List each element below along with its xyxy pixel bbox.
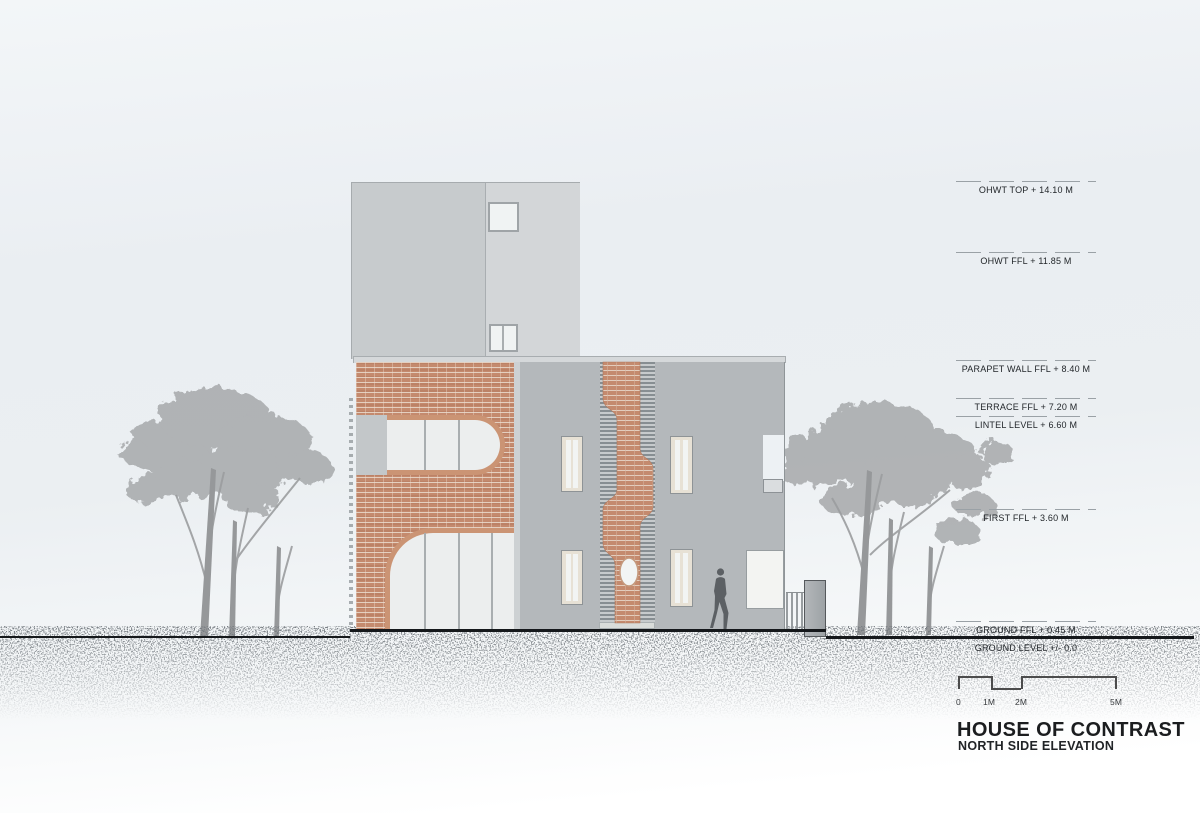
louver-base-sill xyxy=(599,622,655,629)
tower-window-double xyxy=(489,324,518,352)
facade-notch xyxy=(763,435,784,481)
ground-line-right xyxy=(826,636,1194,639)
tree-group-left xyxy=(117,388,332,637)
level-annotation: TERRACE FFL + 7.20 M xyxy=(956,398,1096,412)
level-label: OHWT FFL + 11.85 M xyxy=(956,256,1096,266)
window-pane xyxy=(683,553,688,603)
window-first-right xyxy=(670,436,693,494)
level-line xyxy=(956,416,1096,417)
scale-segment xyxy=(958,676,991,678)
scale-label: 2M xyxy=(1015,697,1027,707)
window-pane xyxy=(683,440,688,490)
rough-wall-edge xyxy=(349,398,353,632)
level-annotation: GROUND FFL + 0.45 M xyxy=(956,621,1096,635)
louver-strip xyxy=(600,362,655,623)
level-annotation: OHWT FFL + 11.85 M xyxy=(956,252,1096,266)
level-label: FIRST FFL + 3.60 M xyxy=(956,513,1096,523)
curved-glass-opening xyxy=(385,528,514,630)
window-pane xyxy=(573,554,578,601)
scale-label: 5M xyxy=(1110,697,1122,707)
level-line xyxy=(956,509,1096,510)
elevation-drawing: OHWT TOP + 14.10 M OHWT FFL + 11.85 M PA… xyxy=(0,0,1200,813)
level-line xyxy=(956,398,1096,399)
window-pane xyxy=(566,554,571,601)
window-ground-right xyxy=(670,549,693,607)
scale-tick xyxy=(958,676,960,689)
level-annotation: PARAPET WALL FFL + 8.40 M xyxy=(956,360,1096,374)
notch-box xyxy=(763,479,783,493)
window-mullion xyxy=(491,533,493,630)
level-annotation: LINTEL LEVEL + 6.60 M xyxy=(956,416,1096,430)
level-label: OHWT TOP + 14.10 M xyxy=(956,185,1096,195)
window-pane xyxy=(573,440,578,488)
window-mullion xyxy=(458,420,460,470)
window-mullion xyxy=(502,326,504,350)
tower-window-small xyxy=(488,202,519,232)
window-mullion xyxy=(424,533,426,630)
entrance-door xyxy=(746,550,784,609)
level-label: PARAPET WALL FFL + 8.40 M xyxy=(956,364,1096,374)
window-pane xyxy=(675,553,680,603)
level-label: GROUND LEVEL +/- 0.0 xyxy=(956,643,1096,653)
ground-line-left xyxy=(0,636,350,638)
window-pane xyxy=(675,440,680,490)
facade-corner-strip xyxy=(514,362,520,630)
level-line xyxy=(956,621,1096,622)
curved-window-band xyxy=(387,415,505,475)
scale-segment xyxy=(991,688,1021,690)
window-first-left xyxy=(561,436,583,492)
level-label: GROUND FFL + 0.45 M xyxy=(956,625,1096,635)
level-label: LINTEL LEVEL + 6.60 M xyxy=(956,420,1096,430)
level-line xyxy=(956,252,1096,253)
level-annotation: FIRST FFL + 3.60 M xyxy=(956,509,1096,523)
stair-tower xyxy=(351,182,580,359)
level-annotation: GROUND LEVEL +/- 0.0 xyxy=(956,640,1096,653)
window-ground-left xyxy=(561,550,583,605)
window-pane xyxy=(566,440,571,488)
level-line xyxy=(956,181,1096,182)
band-side-panel xyxy=(356,415,387,475)
scale-label: 1M xyxy=(983,697,995,707)
scale-segment xyxy=(1021,676,1116,678)
level-annotation: OHWT TOP + 14.10 M xyxy=(956,181,1096,195)
window-mullion xyxy=(424,420,426,470)
window-mullion xyxy=(458,533,460,630)
drawing-title: NORTH SIDE ELEVATION xyxy=(958,739,1114,753)
scale-tick xyxy=(1021,676,1023,689)
level-label: TERRACE FFL + 7.20 M xyxy=(956,402,1096,412)
ground-line-building xyxy=(350,629,826,632)
compound-gate xyxy=(786,592,804,631)
scale-tick xyxy=(1115,676,1117,689)
scale-label: 0 xyxy=(956,697,961,707)
level-line xyxy=(956,360,1096,361)
